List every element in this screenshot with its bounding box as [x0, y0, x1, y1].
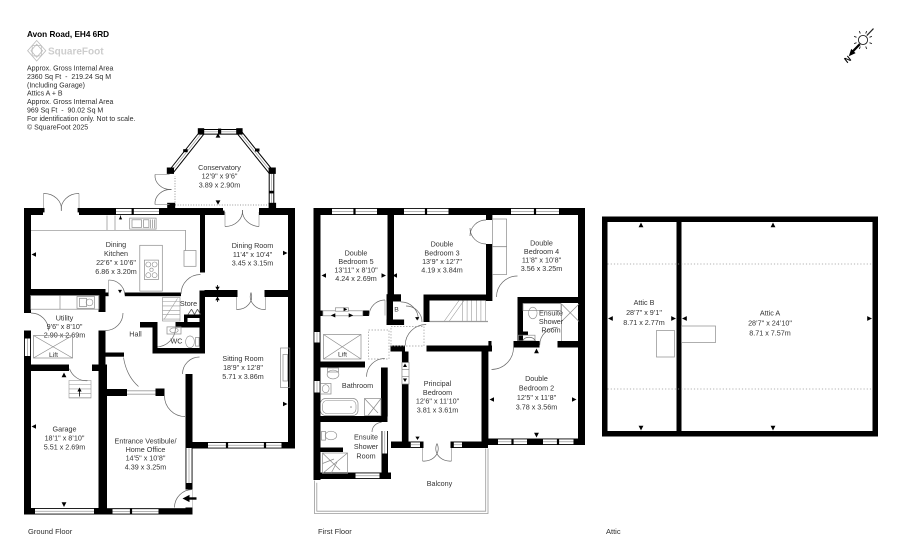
- svg-text:Dining Room: Dining Room: [232, 241, 274, 250]
- svg-text:3.56 x 3.25m: 3.56 x 3.25m: [521, 264, 563, 273]
- svg-text:B: B: [394, 307, 399, 314]
- svg-text:Store: Store: [180, 299, 197, 308]
- svg-text:Bedroom 2: Bedroom 2: [519, 384, 554, 393]
- svg-text:Balcony: Balcony: [427, 479, 453, 488]
- svg-text:Attic A: Attic A: [760, 309, 781, 318]
- svg-text:3.89 x 2.90m: 3.89 x 2.90m: [199, 180, 241, 189]
- svg-text:Dining: Dining: [106, 240, 126, 249]
- svg-text:WC: WC: [171, 337, 183, 346]
- svg-text:3.81 x 3.61m: 3.81 x 3.61m: [417, 406, 459, 415]
- svg-text:12’9" x 9’6": 12’9" x 9’6": [202, 172, 238, 181]
- svg-text:Garage: Garage: [53, 425, 77, 434]
- svg-text:8.71 x 7.57m: 8.71 x 7.57m: [749, 329, 791, 338]
- svg-text:SquareFoot: SquareFoot: [48, 47, 104, 58]
- svg-text:Ensuite: Ensuite: [354, 433, 378, 442]
- svg-text:28’7" x 24’10": 28’7" x 24’10": [748, 319, 792, 328]
- svg-text:Lift: Lift: [338, 352, 347, 359]
- svg-text:3.78 x 3.56m: 3.78 x 3.56m: [516, 403, 558, 412]
- svg-text:Avon Road, EH4 6RD: Avon Road, EH4 6RD: [27, 30, 109, 39]
- svg-text:8.71 x 2.77m: 8.71 x 2.77m: [623, 318, 665, 327]
- svg-text:969 Sq Ft - 90.02 Sq M: 969 Sq Ft - 90.02 Sq M: [27, 108, 103, 115]
- svg-text:5.71 x 3.86m: 5.71 x 3.86m: [222, 372, 264, 381]
- svg-text:Attics A + B: Attics A + B: [27, 91, 63, 98]
- svg-text:18’9" x 12’8": 18’9" x 12’8": [223, 363, 263, 372]
- svg-text:5.51 x 2.69m: 5.51 x 2.69m: [44, 443, 86, 452]
- svg-text:Principal: Principal: [424, 379, 452, 388]
- svg-text:Hall: Hall: [129, 330, 142, 339]
- svg-text:4.24 x 2.69m: 4.24 x 2.69m: [335, 274, 377, 283]
- svg-text:For identification only. Not t: For identification only. Not to scale.: [27, 116, 135, 123]
- svg-text:Attic: Attic: [606, 527, 621, 536]
- svg-text:Approx. Gross Internal Area: Approx. Gross Internal Area: [27, 99, 113, 106]
- svg-text:First Floor: First Floor: [318, 527, 352, 536]
- svg-text:Conservatory: Conservatory: [198, 163, 241, 172]
- svg-text:28’7" x 9’1": 28’7" x 9’1": [626, 308, 662, 317]
- svg-text:4.39 x 3.25m: 4.39 x 3.25m: [125, 463, 167, 472]
- svg-text:18’1" x 8’10": 18’1" x 8’10": [45, 434, 85, 443]
- svg-text:6.86 x 3.20m: 6.86 x 3.20m: [95, 267, 137, 276]
- svg-text:Ground Floor: Ground Floor: [28, 527, 73, 536]
- svg-text:4.19 x 3.84m: 4.19 x 3.84m: [421, 266, 463, 275]
- svg-text:Kitchen: Kitchen: [104, 249, 128, 258]
- svg-text:22’6" x 10’6": 22’6" x 10’6": [96, 258, 136, 267]
- svg-text:2360 Sq Ft - 219.24 Sq M: 2360 Sq Ft - 219.24 Sq M: [27, 74, 111, 81]
- svg-text:12’5" x 11’8": 12’5" x 11’8": [517, 393, 557, 402]
- svg-text:14’5" x 10’8": 14’5" x 10’8": [126, 454, 166, 463]
- svg-text:Bathroom: Bathroom: [342, 381, 373, 390]
- svg-text:12’6" x 11’10": 12’6" x 11’10": [416, 397, 460, 406]
- svg-text:(Including Garage): (Including Garage): [27, 82, 85, 89]
- svg-text:Room: Room: [356, 452, 375, 461]
- svg-text:Double: Double: [431, 240, 454, 249]
- svg-text:Room: Room: [541, 326, 560, 335]
- svg-text:© SquareFoot 2025: © SquareFoot 2025: [27, 123, 88, 131]
- svg-text:Shower: Shower: [354, 442, 379, 451]
- svg-text:Sitting Room: Sitting Room: [222, 354, 263, 363]
- svg-text:Double: Double: [525, 374, 548, 383]
- svg-text:Approx. Gross Internal Area: Approx. Gross Internal Area: [27, 66, 113, 73]
- svg-text:Attic B: Attic B: [634, 298, 655, 307]
- svg-text:3.45 x 3.15m: 3.45 x 3.15m: [232, 259, 274, 268]
- svg-text:2.90 x 2.69m: 2.90 x 2.69m: [44, 331, 86, 340]
